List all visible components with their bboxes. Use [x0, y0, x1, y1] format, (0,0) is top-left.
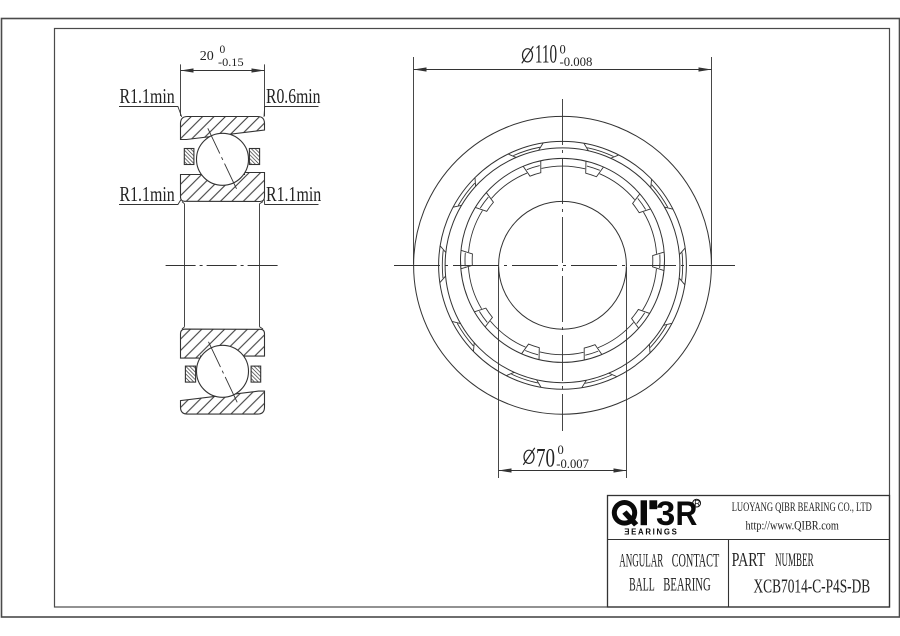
- svg-text:BEARING: BEARING: [663, 574, 710, 595]
- svg-text:ƎEARINGS: ƎEARINGS: [624, 528, 678, 537]
- svg-text:BALL: BALL: [629, 574, 655, 595]
- svg-text:PART: PART: [732, 549, 766, 571]
- svg-text:ANGULAR: ANGULAR: [619, 550, 664, 572]
- svg-text:20: 20: [200, 49, 214, 64]
- svg-text:NUMBER: NUMBER: [775, 550, 814, 572]
- svg-text:R: R: [694, 499, 700, 508]
- svg-text:-0.008: -0.008: [560, 55, 593, 69]
- svg-text:LUOYANG QIBR BEARING CO., LTD: LUOYANG QIBR BEARING CO., LTD: [732, 500, 872, 514]
- svg-text:R0.6min: R0.6min: [266, 85, 321, 109]
- svg-text:CONTACT: CONTACT: [672, 550, 720, 571]
- svg-text:R1.1min: R1.1min: [120, 183, 176, 207]
- svg-text:R1.1min: R1.1min: [120, 85, 176, 109]
- svg-text:0: 0: [558, 443, 564, 457]
- svg-text:-0.007: -0.007: [556, 457, 589, 471]
- svg-text:110: 110: [535, 39, 557, 69]
- svg-text:R1.1min: R1.1min: [266, 183, 322, 207]
- svg-text:http://www.QIBR.com: http://www.QIBR.com: [746, 519, 839, 533]
- svg-text:70: 70: [536, 444, 555, 474]
- svg-text:0: 0: [560, 42, 566, 56]
- svg-text:-0.15: -0.15: [218, 55, 244, 69]
- svg-text:0: 0: [220, 44, 226, 56]
- svg-text:XCB7014-C-P4S-DB: XCB7014-C-P4S-DB: [754, 575, 871, 597]
